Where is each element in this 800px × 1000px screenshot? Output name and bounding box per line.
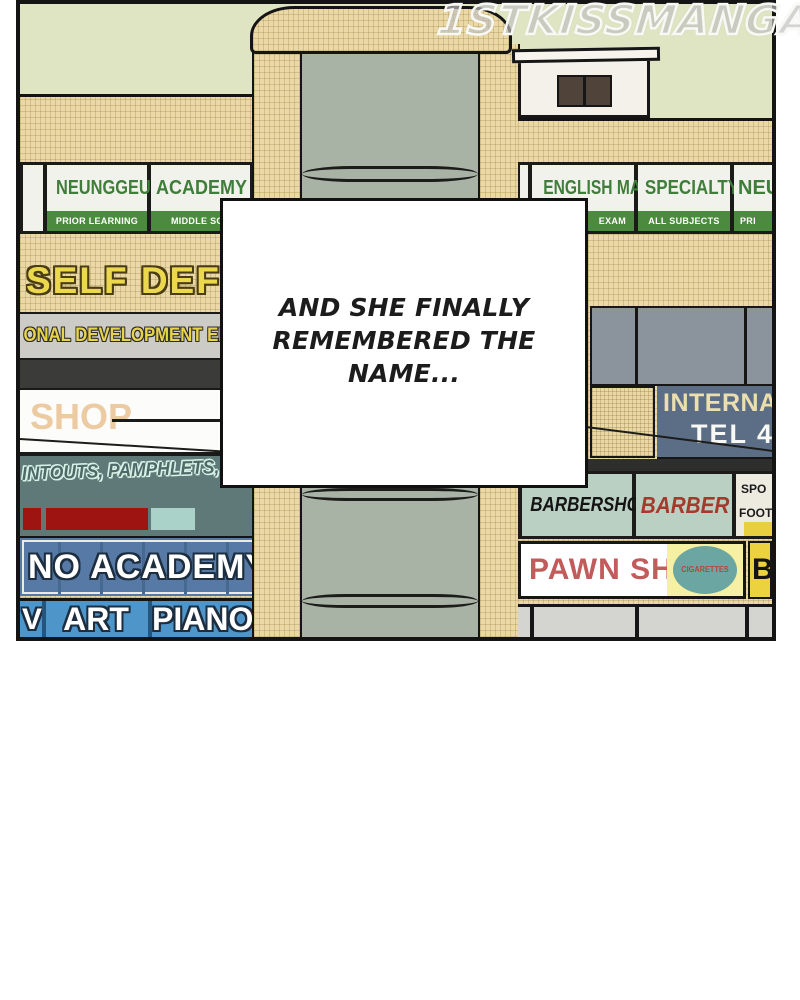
band-divider bbox=[635, 607, 639, 637]
rooftop-window bbox=[557, 75, 585, 107]
teal-banner bbox=[151, 508, 195, 530]
barber-sign: BARBER bbox=[636, 474, 732, 536]
rooftop-window bbox=[584, 75, 612, 107]
caption-box: AND SHE FINALLY REMEMBERED THE NAME... bbox=[220, 198, 588, 488]
shop-sign: SHOP bbox=[20, 388, 253, 452]
sign-specialty: SPECIALTY ALL SUBJECTS bbox=[638, 165, 730, 231]
art-piano-row: V ART PIANO bbox=[20, 598, 253, 637]
sign-neunggeum-title: NEUNGGEUM bbox=[56, 165, 138, 211]
sign-specialty-title: SPECIALTY bbox=[645, 165, 723, 211]
sign-neunggeum-subtitle: PRIOR LEARNING bbox=[47, 211, 147, 231]
sign-neunggeum: NEUNGGEUM PRIOR LEARNING bbox=[47, 165, 147, 231]
sign-specialty-subtitle: ALL SUBJECTS bbox=[638, 211, 730, 231]
red-banner-small bbox=[23, 508, 41, 530]
barber-text: BARBER bbox=[641, 474, 727, 536]
sign-neu-title: NEU bbox=[734, 165, 772, 211]
sports-text-line2: FOOT bbox=[739, 506, 772, 520]
glass-divider bbox=[302, 594, 478, 608]
left-awning-band bbox=[20, 360, 253, 388]
partial-letter: V bbox=[22, 603, 42, 637]
cigarettes-badge: CIGARETTES bbox=[673, 546, 737, 594]
development-sign-text: ONAL DEVELOPMENT EDUCA bbox=[20, 314, 225, 358]
partial-yellow-sign: BA bbox=[748, 541, 772, 599]
sports-text-line1: SPO bbox=[741, 482, 766, 496]
caption-text: AND SHE FINALLY REMEMBERED THE NAME... bbox=[223, 291, 585, 390]
telecom-sign-line1: INTERNA bbox=[663, 389, 772, 418]
panel-divider bbox=[635, 308, 638, 384]
glass-divider bbox=[302, 166, 478, 182]
print-shop-text: INTOUTS, PAMPHLETS, BANNERS bbox=[22, 456, 253, 486]
band-divider bbox=[530, 607, 534, 637]
cigarettes-section: CIGARETTES bbox=[667, 544, 743, 596]
red-banner bbox=[46, 508, 148, 530]
comic-page: NEUNGGEUM PRIOR LEARNING ACADEMY MIDDLE … bbox=[0, 0, 800, 1000]
piano-academy-sign: NO ACADEMY bbox=[20, 536, 258, 596]
rooftop-structure bbox=[518, 54, 650, 118]
comic-panel: NEUNGGEUM PRIOR LEARNING ACADEMY MIDDLE … bbox=[16, 0, 776, 641]
cigarettes-text: CIGARETTES bbox=[676, 546, 735, 594]
piano-sign-text: PIANO bbox=[152, 601, 252, 637]
art-sign-text: ART bbox=[46, 601, 146, 637]
rooftop-slab bbox=[512, 47, 660, 64]
development-sign: ONAL DEVELOPMENT EDUCA bbox=[20, 312, 253, 360]
piano-academy-text: NO ACADEMY bbox=[28, 538, 269, 596]
lattice-panel bbox=[590, 386, 655, 458]
print-shop-sign: INTOUTS, PAMPHLETS, BANNERS bbox=[20, 456, 253, 536]
panel-divider bbox=[744, 308, 747, 384]
storefront-band bbox=[518, 604, 772, 637]
sign-neu-subtitle: PRI bbox=[734, 211, 772, 231]
glass-divider bbox=[302, 488, 478, 501]
partial-sign bbox=[23, 165, 43, 231]
left-academy-sign-row: NEUNGGEUM PRIOR LEARNING ACADEMY MIDDLE … bbox=[20, 162, 253, 234]
partial-yellow-sign-text: BA bbox=[750, 543, 770, 597]
sports-sign: SPO FOOT bbox=[736, 474, 772, 536]
yellow-patch bbox=[744, 522, 772, 536]
right-gray-panels bbox=[590, 306, 772, 386]
band-divider bbox=[745, 607, 749, 637]
pawn-shop-sign: PAWN SHOP CIGARETTES bbox=[518, 541, 746, 599]
self-defense-wall-text: SELF DEFEN bbox=[26, 260, 252, 302]
sign-neu-partial: NEU PRI bbox=[734, 165, 772, 231]
shop-sign-text: SHOP bbox=[30, 396, 132, 438]
site-watermark: 1STKISSMANGA.IO bbox=[435, 0, 800, 44]
